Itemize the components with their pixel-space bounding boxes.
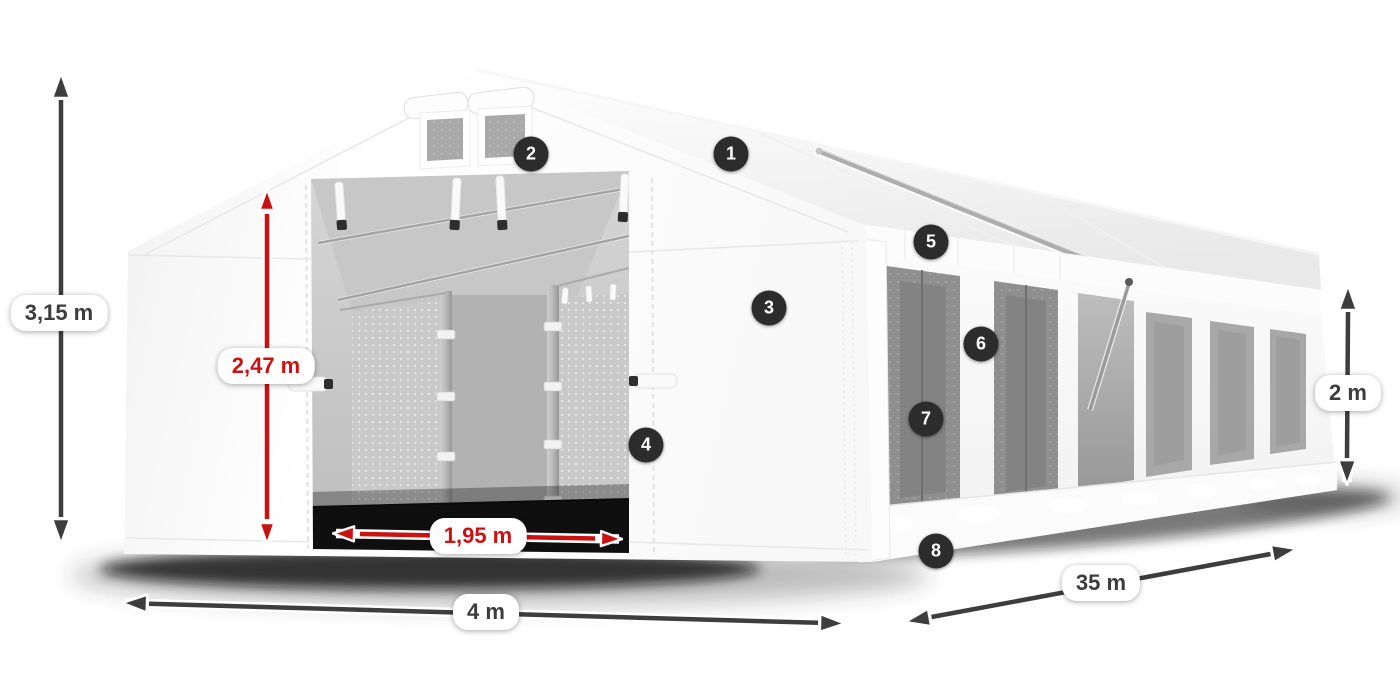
label-front-width: 4 m — [453, 594, 519, 630]
tent-interior — [311, 170, 629, 553]
callout-1[interactable]: 1 — [714, 137, 749, 172]
diagram-canvas — [0, 0, 1400, 700]
callout-8[interactable]: 8 — [919, 534, 954, 569]
callout-3[interactable]: 3 — [752, 291, 787, 326]
side-window-far-3 — [1270, 329, 1306, 454]
side-window-far-2 — [1210, 321, 1254, 465]
tent-dimension-diagram: 3,15 m 2,47 m 1,95 m 4 m 35 m 2 m 1 2 3 … — [0, 0, 1400, 700]
callout-7[interactable]: 7 — [909, 402, 944, 437]
label-door-height: 2,47 m — [218, 348, 315, 384]
callout-5[interactable]: 5 — [914, 225, 949, 260]
label-side-length: 35 m — [1062, 565, 1140, 601]
callout-6[interactable]: 6 — [964, 327, 999, 362]
label-side-wall-height: 2 m — [1315, 375, 1381, 411]
label-door-width: 1,95 m — [430, 518, 527, 554]
side-window-far-1 — [1146, 312, 1192, 477]
label-overall-height: 3,15 m — [11, 295, 108, 331]
side-window-mesh-2 — [994, 281, 1058, 506]
side-window-mesh-1 — [886, 266, 960, 514]
callout-2[interactable]: 2 — [514, 137, 549, 172]
side-open-bay — [1078, 278, 1134, 489]
callout-4[interactable]: 4 — [629, 428, 664, 463]
